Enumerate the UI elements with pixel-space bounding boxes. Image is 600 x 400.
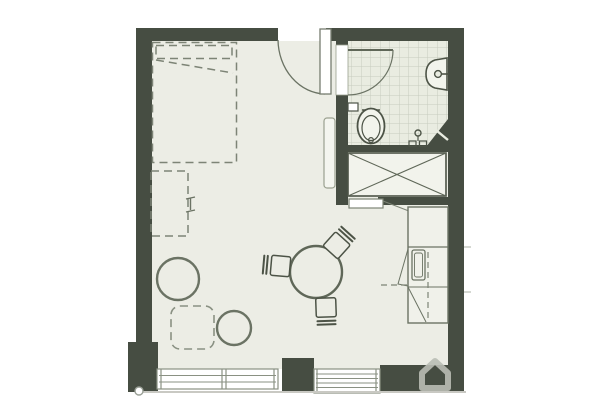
pouf-1	[157, 258, 199, 300]
toilet	[358, 109, 385, 144]
floor-plan	[0, 0, 600, 400]
chair-left	[263, 255, 291, 277]
basin-drain	[435, 71, 442, 78]
radiator	[324, 118, 335, 188]
ground-line-marker	[135, 387, 143, 395]
bottom-center-pier	[282, 358, 314, 392]
bathroom-door-opening	[336, 45, 348, 95]
chair-bottom	[316, 298, 337, 325]
top-wall-right	[326, 28, 464, 41]
right-wall	[448, 28, 464, 392]
left-corner-pier	[128, 342, 158, 392]
wardrobe-closet	[348, 153, 446, 196]
wall-tick-marks	[464, 247, 471, 292]
wash-basin	[426, 58, 449, 90]
toilet-paper-holder	[348, 103, 358, 111]
window-left	[157, 369, 278, 389]
window-right	[314, 369, 380, 393]
left-wall	[136, 28, 152, 348]
top-wall-left	[136, 28, 278, 41]
floor-plan-drawing	[0, 0, 600, 400]
entry-door-leaf	[320, 29, 331, 94]
pouf-2	[217, 311, 251, 345]
